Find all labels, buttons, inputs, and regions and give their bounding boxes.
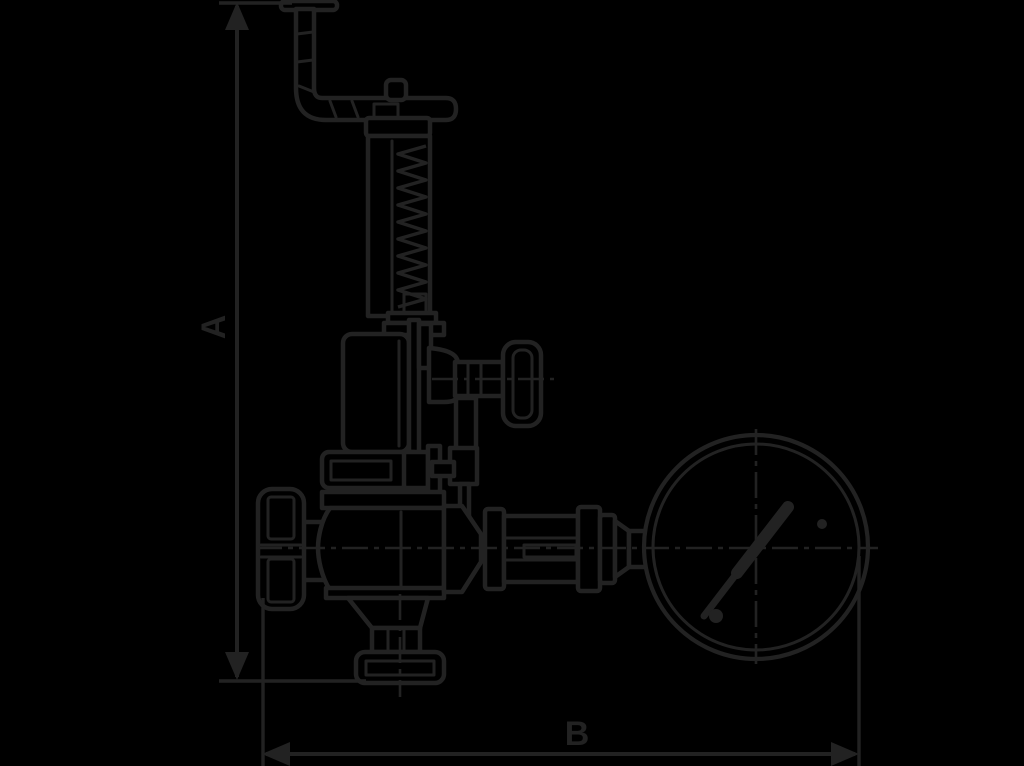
bonnet-flange [322, 446, 440, 494]
gauge-screw-dot [817, 519, 827, 529]
technical-drawing-canvas: A B [0, 0, 1024, 766]
downlink-upper [456, 398, 476, 450]
dim-b-arrow-right-icon [831, 742, 859, 766]
lever-handle [281, 1, 456, 122]
dim-b-arrow-left-icon [262, 742, 290, 766]
flange-side-boss [404, 452, 428, 488]
upper-housing [343, 320, 458, 454]
bonnet-cap [366, 118, 430, 136]
outlet-neck [372, 628, 420, 652]
adjusting-stem [386, 80, 406, 100]
downlink-crossband [432, 462, 454, 476]
side-knob [503, 342, 541, 426]
outlet-cone [348, 598, 428, 628]
body-top-band [322, 492, 444, 508]
dim-a-arrow-top-icon [225, 2, 249, 30]
dim-a-arrow-bottom-icon [225, 652, 249, 680]
gauge-pivot-dot [709, 609, 723, 623]
valve-body [318, 492, 481, 598]
valve-technical-drawing: A B [0, 0, 1024, 766]
spring-bonnet [366, 118, 444, 335]
valve-assembly [258, 1, 868, 683]
page: { "diagram": { "subject": "safety-relief… [0, 0, 1024, 766]
body-main [318, 508, 444, 590]
dim-a-label: A [195, 315, 233, 340]
dim-b-label: B [565, 715, 590, 753]
outlet [348, 598, 444, 683]
